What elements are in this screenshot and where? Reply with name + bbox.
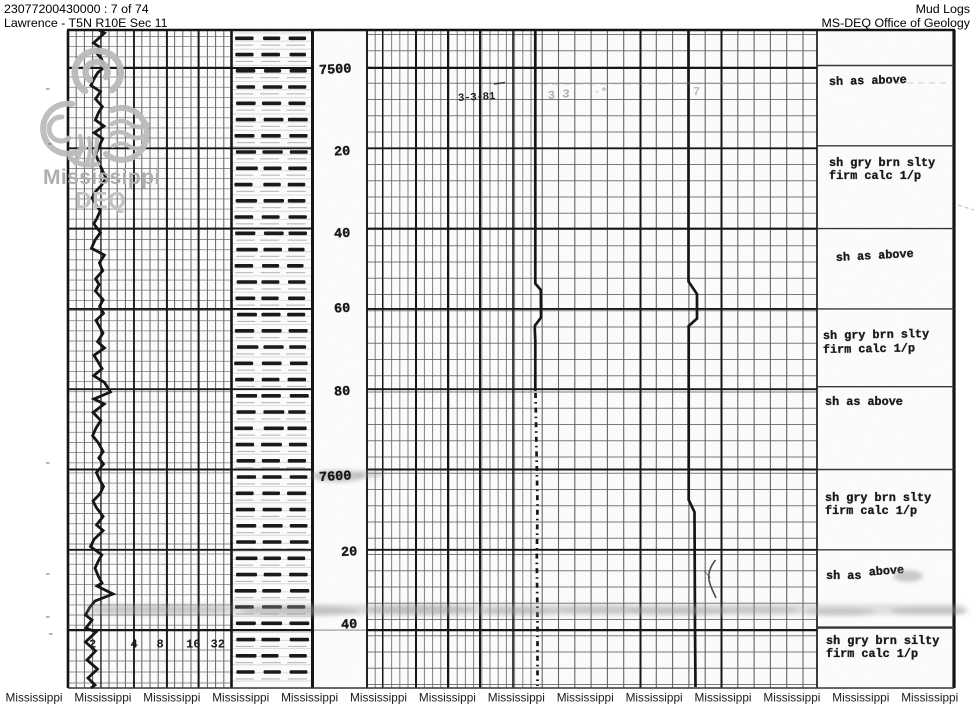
svg-text:Mud Logs: Mud Logs	[916, 2, 970, 16]
svg-text:Mississippi: Mississippi	[488, 691, 545, 705]
svg-text:Mississippi: Mississippi	[832, 691, 889, 705]
svg-text:MS-DEQ Office of Geology: MS-DEQ Office of Geology	[821, 16, 970, 30]
svg-text:Mississippi: Mississippi	[74, 691, 131, 705]
svg-text:Lawrence - T5N R10E Sec 11: Lawrence - T5N R10E Sec 11	[4, 16, 168, 30]
svg-text:Mississippi: Mississippi	[763, 691, 820, 705]
svg-text:23077200430000 : 7 of 74: 23077200430000 : 7 of 74	[4, 2, 149, 16]
svg-text:Mississippi: Mississippi	[281, 691, 338, 705]
svg-text:Mississippi: Mississippi	[557, 691, 614, 705]
svg-text:Mississippi: Mississippi	[143, 691, 200, 705]
svg-text:Mississippi: Mississippi	[901, 691, 958, 705]
svg-text:Mississippi: Mississippi	[695, 691, 752, 705]
svg-text:Mississippi: Mississippi	[6, 691, 63, 705]
svg-text:Mississippi: Mississippi	[212, 691, 269, 705]
svg-text:Mississippi: Mississippi	[626, 691, 683, 705]
svg-text:Mississippi: Mississippi	[419, 691, 476, 705]
svg-text:Mississippi: Mississippi	[350, 691, 407, 705]
